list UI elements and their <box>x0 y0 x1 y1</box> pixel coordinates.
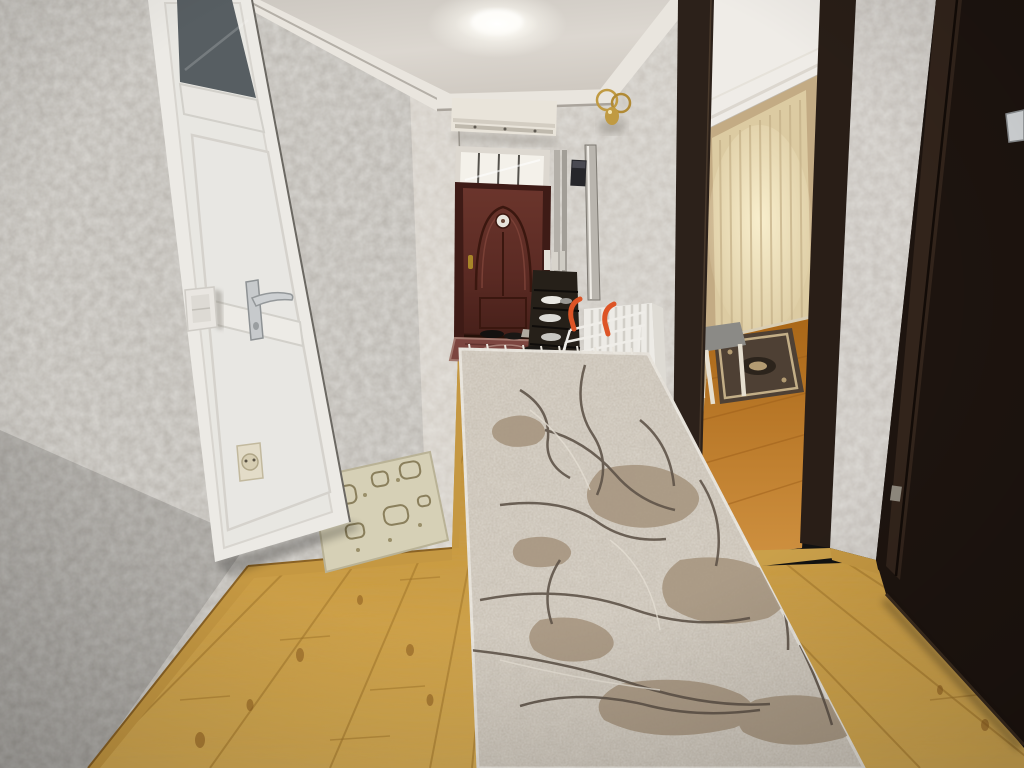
vignette <box>0 0 1024 768</box>
hallway-photo <box>0 0 1024 768</box>
hallway-scene <box>0 0 1024 768</box>
